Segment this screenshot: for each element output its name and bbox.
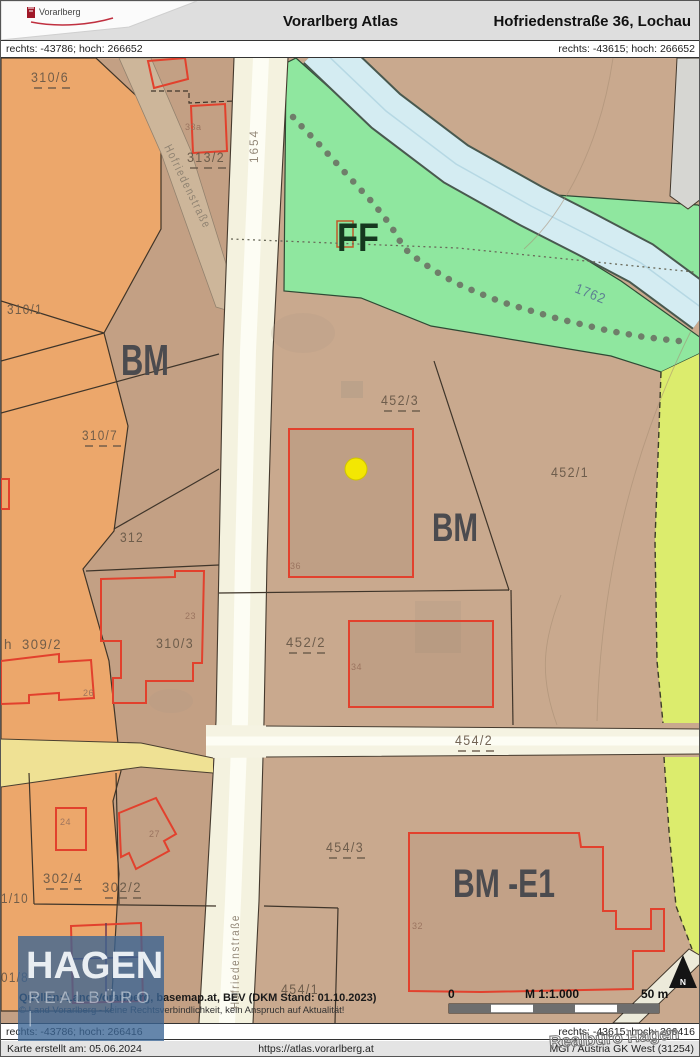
- scale-zero-label: 0: [448, 987, 455, 1001]
- coord-top-left: rechts: -43786; hoch: 266652: [6, 43, 143, 55]
- footer-crs: MGI / Austria GK West (31254): [549, 1043, 694, 1055]
- map-label-bm: BM: [121, 336, 169, 385]
- map-label-312: 312: [120, 530, 144, 545]
- coord-strip-top: rechts: -43786; hoch: 266652 rechts: -43…: [1, 41, 699, 58]
- map-label-452-2: 452/2: [286, 635, 326, 650]
- map-label-34: 34: [351, 662, 362, 672]
- scale-ratio-label: M 1:1.000: [525, 987, 579, 1001]
- map-label-310-3: 310/3: [156, 636, 194, 651]
- map-label-302-4: 302/4: [43, 871, 83, 886]
- hagen-logo-sub: REALBÜRO |: [28, 988, 164, 1028]
- map-label-454-2: 454/2: [455, 733, 493, 748]
- map-label-309-2: 309/2: [22, 637, 62, 652]
- map-label-313-2: 313/2: [187, 150, 225, 165]
- map-label-310-6: 310/6: [31, 70, 69, 85]
- map-label-h: h: [4, 637, 13, 652]
- map-label-454-3: 454/3: [326, 840, 364, 855]
- map-label-32: 32: [412, 921, 423, 931]
- map-label-1654: 1654: [247, 129, 261, 163]
- coord-bottom-right: rechts: -43615; hoch: 266416: [558, 1026, 695, 1038]
- location-marker-dot: [345, 458, 367, 480]
- hagen-logo-name: HAGEN: [26, 946, 164, 988]
- map-svg: FFBMBMBM -E1310/6313/2310/1310/7312h309/…: [1, 58, 700, 1023]
- coord-top-right: rechts: -43615; hoch: 266652: [558, 43, 695, 55]
- hagen-logo: HAGEN REALBÜRO |: [18, 936, 164, 1041]
- map-label-36: 36: [290, 561, 301, 571]
- footer-created-date: Karte erstellt am: 05.06.2024: [7, 1043, 142, 1055]
- building-36-outline: [289, 429, 413, 577]
- footer: Karte erstellt am: 05.06.2024 https://at…: [1, 1041, 699, 1057]
- header: Vorarlberg Vorarlberg Atlas Hofriedenstr…: [1, 1, 699, 41]
- map-label-310-1: 310/1: [7, 302, 43, 317]
- map-label-23: 23: [185, 611, 196, 621]
- map-label-1-10: 1/10: [1, 891, 29, 906]
- page-title-location: Hofriedenstraße 36, Lochau: [493, 13, 691, 30]
- map-label-ff: FF: [337, 216, 379, 260]
- building-34-outline: [349, 621, 493, 707]
- map-label-bm: BM: [432, 506, 478, 550]
- map-label-bm-e1: BM -E1: [453, 862, 555, 906]
- footer-url: https://atlas.vorarlberg.at: [258, 1043, 374, 1055]
- north-letter: N: [680, 977, 686, 987]
- app-title: Vorarlberg Atlas: [283, 13, 398, 30]
- map-label-27: 27: [149, 829, 160, 839]
- vorarlberg-logo-icon: Vorarlberg: [1, 1, 201, 40]
- map-label-24: 24: [60, 817, 71, 827]
- map-label-26: 26: [83, 688, 94, 698]
- scale-max-label: 50 m: [641, 987, 668, 1001]
- map-label-310-7: 310/7: [82, 428, 118, 443]
- map-label-452-1: 452/1: [551, 465, 589, 480]
- logo-text: Vorarlberg: [39, 7, 81, 17]
- atlas-print-page: Vorarlberg Vorarlberg Atlas Hofriedenstr…: [0, 0, 700, 1057]
- map-label-302-2: 302/2: [102, 880, 142, 895]
- map-canvas: FFBMBMBM -E1310/6313/2310/1310/7312h309/…: [1, 58, 700, 1023]
- map-label-452-3: 452/3: [381, 393, 419, 408]
- map-label-33a: 33a: [185, 122, 202, 132]
